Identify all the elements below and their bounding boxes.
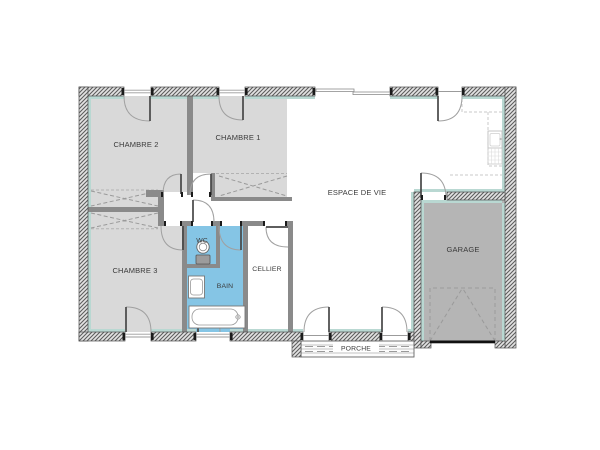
back-door-swing bbox=[438, 96, 462, 121]
door-swing-porche-left bbox=[304, 307, 329, 332]
washbasin-icon bbox=[189, 276, 205, 298]
door-swing-porche-right bbox=[382, 307, 407, 332]
bay-window bbox=[316, 89, 390, 95]
door-swing-wc bbox=[193, 200, 214, 222]
kitchen-counter bbox=[462, 99, 502, 112]
floor-plan-page: CHAMBRE 2 CHAMBRE 1 CHAMBRE 3 WC BAIN CE… bbox=[0, 0, 600, 450]
window-chambre1 bbox=[219, 90, 245, 93]
floor-plan: CHAMBRE 2 CHAMBRE 1 CHAMBRE 3 WC BAIN CE… bbox=[0, 0, 600, 450]
door-swing-chambre1 bbox=[190, 174, 211, 195]
room-label-cellier: CELLIER bbox=[252, 266, 281, 273]
window-bain bbox=[196, 334, 230, 337]
room-label-chambre3: CHAMBRE 3 bbox=[112, 266, 157, 275]
door-swing-garage bbox=[421, 173, 446, 198]
room-label-espace-de-vie: ESPACE DE VIE bbox=[328, 188, 387, 197]
kitchen-sink bbox=[488, 131, 502, 164]
room-label-bain: BAIN bbox=[217, 283, 233, 290]
room-fills bbox=[91, 96, 505, 341]
window-chambre2 bbox=[124, 90, 151, 93]
room-garage-floor bbox=[421, 200, 505, 341]
room-label-wc: WC bbox=[196, 238, 208, 245]
door-swing-cellier bbox=[266, 227, 288, 247]
room-label-chambre1: CHAMBRE 1 bbox=[215, 133, 260, 142]
room-label-porche: PORCHE bbox=[341, 346, 371, 353]
window-chambre3 bbox=[125, 334, 151, 337]
room-label-garage: GARAGE bbox=[447, 245, 480, 254]
bathtub-icon bbox=[189, 306, 245, 328]
room-label-chambre2: CHAMBRE 2 bbox=[113, 140, 158, 149]
